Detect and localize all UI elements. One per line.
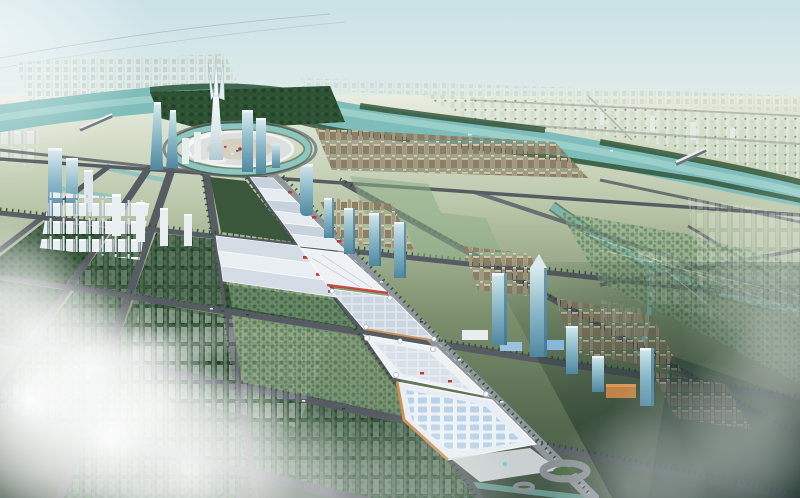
glass-tower (592, 356, 604, 392)
aerial-city-rendering (0, 0, 800, 498)
glass-tower (492, 273, 507, 345)
white-tower (182, 138, 189, 164)
glass-tower (394, 222, 406, 278)
white-tower (194, 132, 201, 162)
glass-tower (369, 213, 381, 266)
aerial-render-stage (0, 0, 800, 498)
glass-tower (242, 112, 253, 172)
glass-tower (324, 198, 334, 238)
glass-tower (344, 208, 355, 254)
glass-tower-crown (530, 254, 547, 357)
glass-tower (300, 164, 313, 216)
glass-tower (272, 144, 280, 168)
glass-tower (256, 120, 266, 174)
glass-tower (566, 326, 578, 374)
